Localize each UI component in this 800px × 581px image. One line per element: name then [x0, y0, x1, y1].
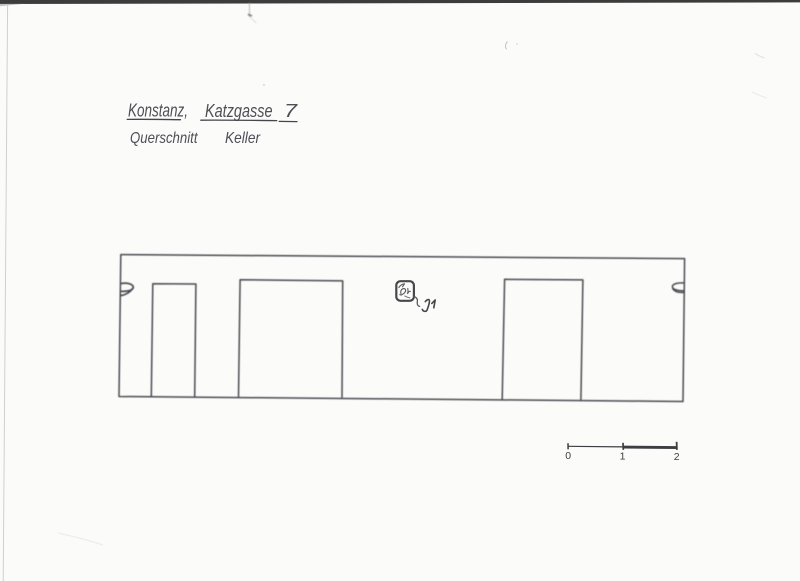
svg-text:Keller: Keller [225, 130, 261, 147]
svg-text:0: 0 [565, 450, 571, 462]
svg-text:7: 7 [284, 101, 298, 121]
svg-text:Querschnitt: Querschnitt [130, 130, 198, 147]
svg-text:1: 1 [620, 450, 626, 462]
svg-text:Katzgasse: Katzgasse [205, 101, 273, 121]
svg-text:Konstanz,: Konstanz, [128, 101, 188, 121]
svg-text:2: 2 [674, 451, 680, 463]
